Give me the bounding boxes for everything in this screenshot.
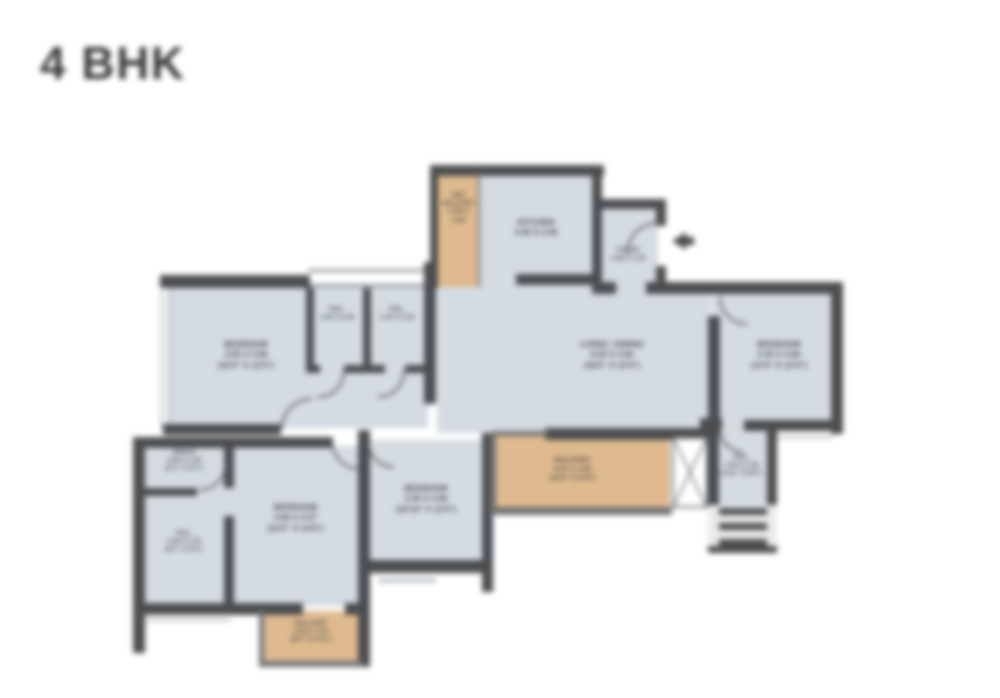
room-label-toilet-2: TOIL. 1.40 X 2.20	[372, 306, 422, 322]
wall	[160, 275, 310, 288]
room-label-kitchen: KITCHEN 3.05 X 2.90	[496, 218, 576, 239]
dry-balcony-floor	[437, 170, 480, 287]
wall	[430, 165, 604, 176]
ladder-rung	[719, 523, 767, 530]
blurred-render: 4 BHK	[0, 0, 1000, 698]
wall	[163, 424, 281, 435]
wall	[344, 365, 371, 373]
room-label-balcony-2: BALCONY 2.45 X 1.50 (8'0" X 4'11")	[272, 620, 350, 645]
wall	[259, 611, 264, 667]
room-label-living-dining: LIVING / DINING 5.50 X 3.66 (18'0" X 12'…	[558, 340, 666, 371]
room-label-toilet-1: TOIL. 1.40 X 2.20	[312, 306, 362, 322]
room-label-balcony-1: BALCONY 4.57 X 1.83 (15'0" X 6'0")	[530, 456, 615, 483]
ladder-rung	[719, 508, 767, 515]
wall	[306, 288, 314, 373]
window	[161, 289, 170, 429]
wall	[490, 433, 496, 514]
window	[308, 269, 425, 287]
wall	[345, 603, 370, 615]
room-label-toilet-4: TOIL. 1.50 X 2.45 (4'11" X 8'0")	[714, 454, 769, 479]
duct-shaft	[672, 437, 708, 508]
wall	[744, 420, 842, 431]
room-label-bedroom-4: BEDROOM 3.30 X 3.66 (10'10" X 12'0")	[380, 484, 472, 515]
balcony-slider-line	[492, 431, 548, 436]
wall	[646, 282, 842, 294]
room-label-bedroom-1: BEDROOM 3.05 X 3.66 (10'0" X 12'0")	[200, 340, 292, 371]
wall	[490, 507, 672, 515]
room-label-bedroom-2: BEDROOM 3.35 X 3.66 (11'0" X 12'0")	[731, 340, 827, 371]
room-label-dress: DRESS 1.85 X 1.40 (6'1" X 4'7")	[150, 449, 218, 474]
floor-plan-page: 4 BHK	[0, 0, 1000, 698]
wall	[145, 488, 197, 496]
wall	[430, 165, 438, 288]
window	[378, 578, 436, 583]
room-label-foyer: FOYER 1.85 X 1.20	[600, 247, 656, 263]
wall	[363, 288, 371, 373]
wall	[405, 365, 436, 373]
room-label-toilet-3: TOIL. 1.85 X 2.75 (6'1" X 9'0")	[150, 530, 218, 555]
wall	[259, 661, 363, 667]
wall	[224, 516, 234, 606]
wall	[133, 437, 145, 653]
wall	[478, 172, 480, 287]
duct-cross-icon	[674, 439, 706, 506]
room-label-bedroom-3: BEDROOM 3.66 X 4.27 (12'0" X 14'0")	[248, 503, 343, 534]
wall	[516, 274, 594, 285]
wall	[363, 560, 483, 573]
wall	[831, 282, 843, 434]
wall	[708, 316, 720, 422]
page-title: 4 BHK	[40, 36, 186, 90]
room-label-dry-balcony: DRY BALCONY 0.95 X 2.90	[438, 192, 480, 225]
ladder-rung	[708, 546, 777, 553]
wall	[133, 603, 303, 615]
ladder-rung	[719, 539, 767, 546]
wall	[592, 282, 616, 294]
entry-arrow-icon	[672, 231, 698, 251]
